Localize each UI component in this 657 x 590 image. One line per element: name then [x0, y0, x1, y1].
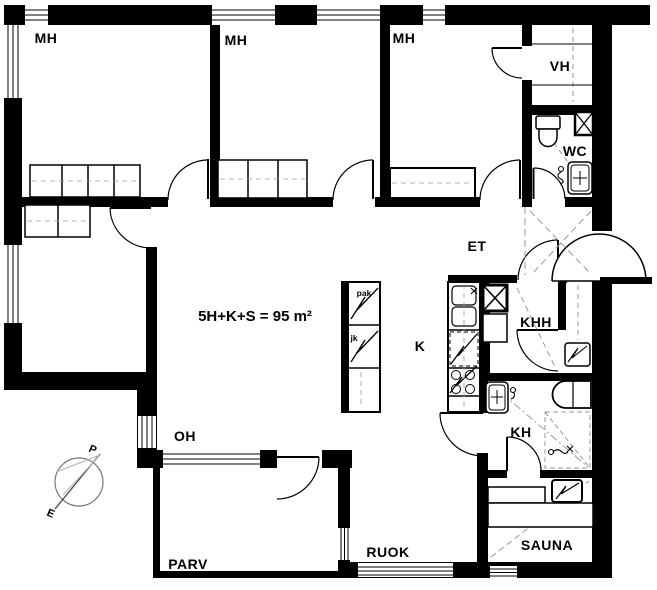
window-oh-south	[163, 450, 260, 468]
compass-south-label: E	[45, 507, 57, 521]
washing-machine	[565, 343, 590, 366]
kitchen-fridge-unit	[342, 282, 380, 412]
windows	[4, 5, 517, 578]
label-et: ET	[468, 238, 487, 254]
label-k: K	[415, 338, 426, 354]
wardrobe-mh3	[390, 168, 475, 198]
door-mh3	[480, 160, 520, 200]
window-top-1	[25, 5, 48, 25]
khh-shaft	[483, 285, 507, 311]
label-oh: OH	[174, 428, 196, 444]
compass-circle	[55, 458, 103, 506]
sauna-stove	[552, 480, 582, 502]
shower-area	[545, 412, 590, 468]
window-left-2	[4, 245, 22, 323]
label-khh: KHH	[520, 314, 552, 330]
wall-sauna-west	[477, 477, 488, 562]
compass-wedge	[56, 455, 100, 495]
wall-right	[592, 5, 612, 578]
label-kh: KH	[510, 424, 531, 440]
window-ruok-south	[358, 563, 453, 577]
wc-toilet	[536, 116, 560, 147]
wall-leftroom-east	[146, 247, 157, 372]
window-left-1	[4, 25, 22, 98]
wall-kh-bottom-b	[540, 470, 592, 478]
wall-khh-bottom	[480, 373, 593, 381]
bathtub	[553, 381, 592, 408]
khh-cabinet	[483, 314, 507, 342]
wall-divider-mh2-mh3	[380, 25, 390, 197]
label-ruok: RUOK	[366, 544, 409, 560]
window-top-2	[212, 5, 275, 25]
compass-north-label: P	[87, 443, 99, 457]
door-vh	[492, 48, 522, 78]
label-fridge: jk	[349, 333, 357, 343]
wall-parv-bottom	[153, 571, 345, 578]
wall-corridor-4	[565, 197, 592, 207]
window-sauna-south	[490, 566, 517, 578]
wardrobe-mh1	[30, 165, 140, 197]
wall-step	[4, 372, 157, 390]
kh-faucet	[511, 388, 516, 400]
kh-sink	[486, 382, 516, 413]
label-mh3: MH	[393, 30, 416, 46]
label-wc: WC	[563, 143, 587, 159]
label-parv: PARV	[168, 556, 208, 572]
door-sauna	[507, 437, 541, 471]
kitchen-counter-unit	[448, 282, 480, 412]
wall-parv-left	[153, 468, 160, 578]
wall-kh-bottom-a	[477, 470, 507, 478]
door-khh-inner	[517, 330, 558, 371]
label-mh1: MH	[35, 30, 58, 46]
wc-shaft	[575, 112, 593, 135]
door-kh	[440, 413, 483, 456]
label-freezer: pak	[357, 288, 372, 298]
door-entrance	[552, 234, 652, 284]
door-mh2	[333, 160, 373, 200]
window-top-4	[423, 5, 445, 25]
wardrobe-leftroom	[25, 205, 90, 237]
wall-niche-divider	[558, 283, 566, 330]
label-mh2: MH	[225, 32, 248, 48]
window-top-3	[317, 5, 380, 25]
shower-faucet	[549, 446, 574, 455]
door-leftroom	[110, 208, 151, 248]
floorplan-drawing: P E MH MH MH VH WC ET KHH K KH OH PARV R…	[0, 0, 657, 590]
compass: P E	[45, 443, 103, 521]
door-mh1	[168, 159, 208, 200]
window-oh-west	[138, 416, 156, 448]
window-parv-ruok	[338, 528, 350, 560]
label-sauna: SAUNA	[521, 537, 573, 553]
floorplan: P E MH MH MH VH WC ET KHH K KH OH PARV R…	[0, 0, 657, 590]
label-area: 5H+K+S = 95 m²	[198, 308, 312, 325]
wardrobe-mh2	[218, 160, 307, 198]
label-vh: VH	[550, 58, 570, 74]
